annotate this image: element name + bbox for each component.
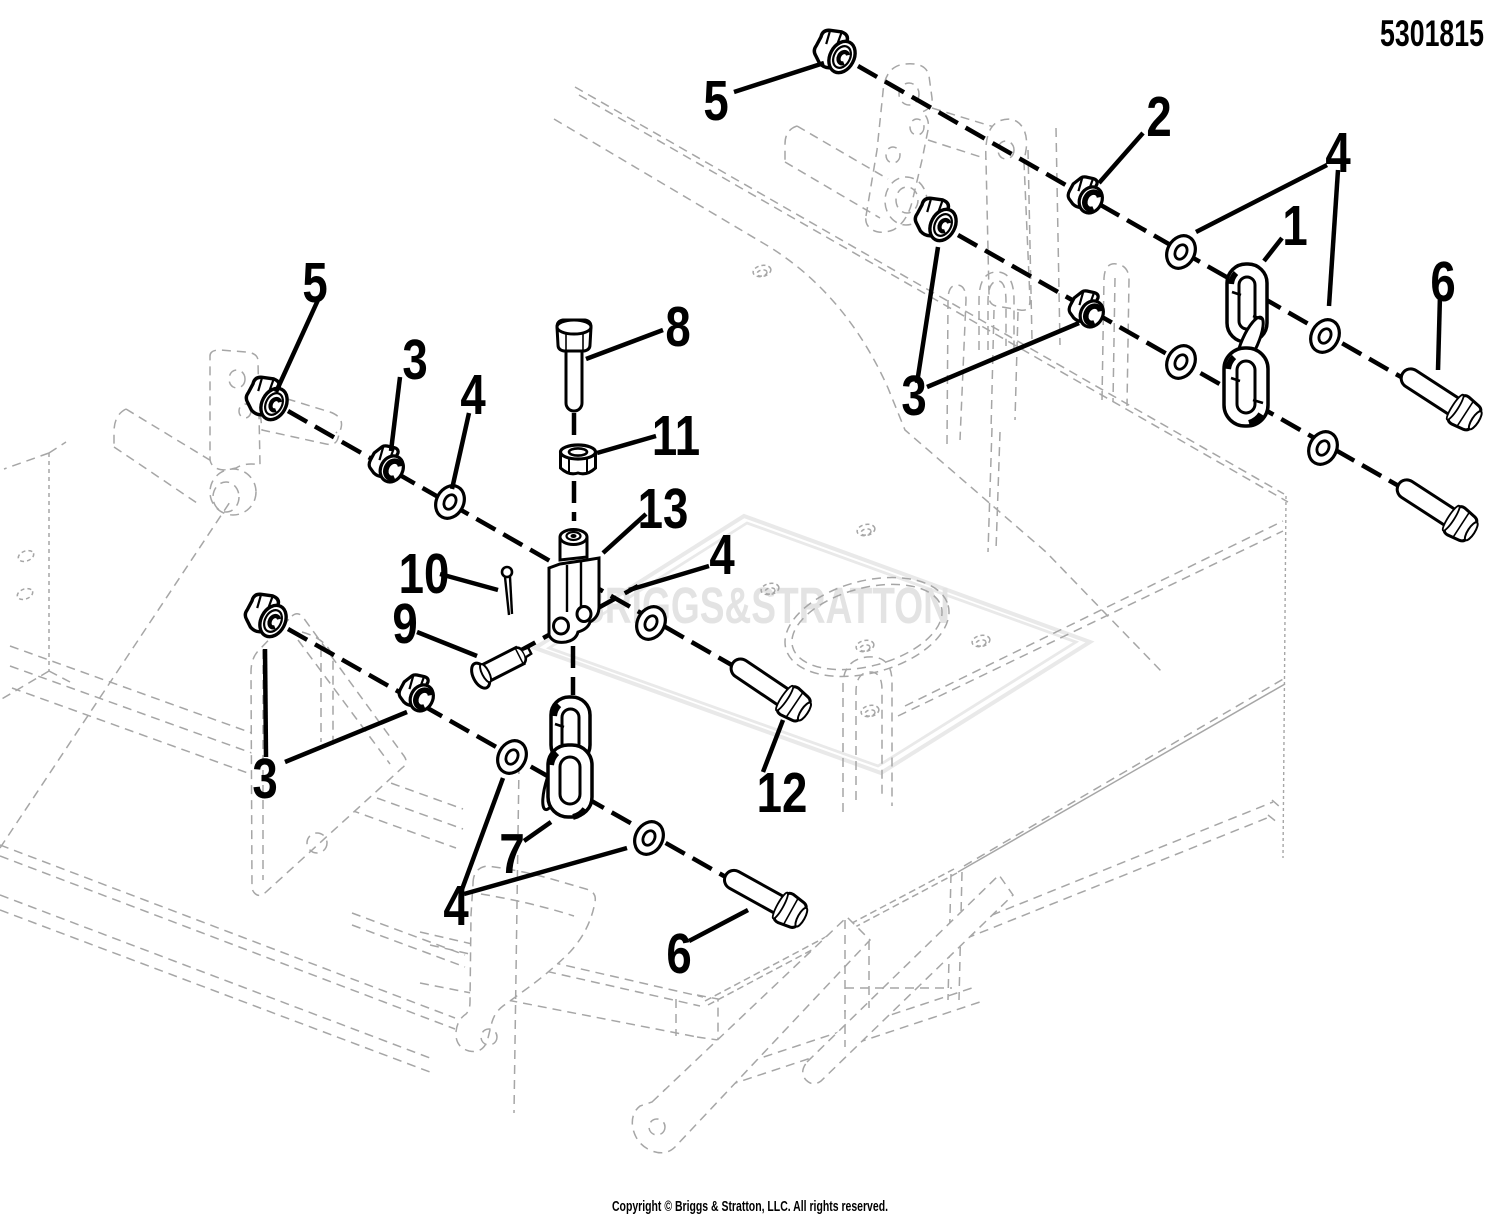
svg-text:Copyright © Briggs & Stratton,: Copyright © Briggs & Stratton, LLC. All … [612, 1199, 888, 1215]
svg-text:5: 5 [703, 68, 728, 132]
svg-text:3: 3 [402, 327, 427, 391]
svg-text:9: 9 [392, 591, 417, 655]
svg-text:4: 4 [460, 362, 486, 426]
svg-text:4: 4 [1325, 120, 1351, 184]
svg-text:5301815: 5301815 [1380, 13, 1484, 54]
svg-text:3: 3 [901, 363, 926, 427]
svg-text:4: 4 [443, 873, 469, 937]
svg-text:13: 13 [638, 476, 689, 540]
svg-text:1: 1 [1282, 193, 1307, 257]
svg-text:12: 12 [757, 760, 808, 824]
svg-text:11: 11 [652, 403, 700, 467]
svg-text:2: 2 [1146, 84, 1171, 148]
svg-text:3: 3 [252, 746, 277, 810]
svg-text:5: 5 [302, 250, 327, 314]
svg-text:6: 6 [1430, 249, 1455, 313]
svg-text:7: 7 [499, 821, 524, 885]
svg-text:6: 6 [666, 921, 691, 985]
svg-text:4: 4 [709, 522, 735, 586]
svg-text:8: 8 [665, 294, 690, 358]
